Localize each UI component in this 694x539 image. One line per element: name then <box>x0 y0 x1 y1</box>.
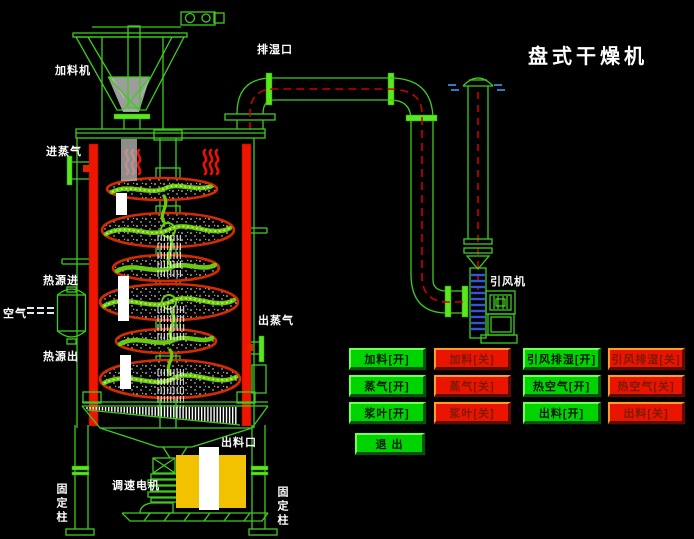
label-speed-motor: 调速电机 <box>112 477 160 493</box>
button-steam-off[interactable]: 蒸气[关] <box>434 375 511 397</box>
button-discharge-on[interactable]: 出料[开] <box>523 402 601 424</box>
button-paddle-on[interactable]: 浆叶[开] <box>349 402 426 424</box>
label-air: 空气 <box>3 305 27 321</box>
label-heat-in: 热源进 <box>43 272 79 288</box>
heat-column-left <box>89 144 98 426</box>
label-exhaust-port: 排湿口 <box>257 41 293 57</box>
heat-column-right <box>242 144 251 426</box>
button-fan-dehumidify-on[interactable]: 引风排湿[开] <box>523 348 601 370</box>
discharge-chute <box>199 447 219 510</box>
label-feeder: 加料机 <box>55 62 91 78</box>
feeder-hopper <box>73 12 224 129</box>
button-discharge-off[interactable]: 出料[关] <box>608 402 685 424</box>
button-hot-air-on[interactable]: 热空气[开] <box>523 375 601 397</box>
air-tank <box>58 287 86 344</box>
button-fan-dehumidify-off[interactable]: 引风排湿[关] <box>608 348 685 370</box>
label-steam-out: 出蒸气 <box>258 312 294 328</box>
label-fixed-column-right: 固定柱 <box>274 486 290 528</box>
steam-inlet-fitting <box>67 156 90 185</box>
dryer-diagram <box>0 0 694 539</box>
button-paddle-off[interactable]: 浆叶[关] <box>434 402 511 424</box>
button-hot-air-off[interactable]: 热空气[关] <box>608 375 685 397</box>
dryer-hmi-screen: 加料机 排湿口 进蒸气 热源进 空气 热源出 出蒸气 引风机 出料口 调速电机 … <box>0 0 694 539</box>
label-fixed-column-left: 固定柱 <box>53 483 69 525</box>
label-discharge-port: 出料口 <box>221 434 257 450</box>
page-title: 盘式干燥机 <box>528 40 648 69</box>
label-fan: 引风机 <box>490 273 526 289</box>
button-feed-on[interactable]: 加料[开] <box>349 348 426 370</box>
button-feed-off[interactable]: 加料[关] <box>434 348 511 370</box>
exhaust-duct <box>225 73 468 317</box>
label-steam-in: 进蒸气 <box>46 143 82 159</box>
heat-wave-symbols <box>126 150 218 174</box>
button-steam-on[interactable]: 蒸气[开] <box>349 375 426 397</box>
button-exit[interactable]: 退 出 <box>355 433 425 455</box>
air-flow-dashes <box>27 308 54 313</box>
induced-draft-fan <box>448 78 517 343</box>
label-heat-out: 热源出 <box>43 348 79 364</box>
